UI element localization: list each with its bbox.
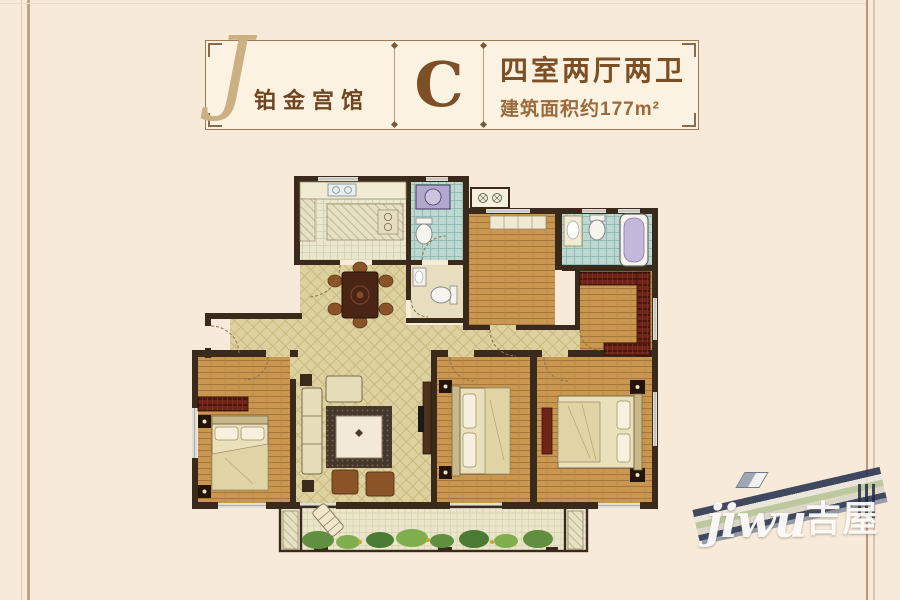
sofa	[302, 388, 322, 474]
watermark-cjk: 吉屋	[805, 498, 879, 539]
toilet	[416, 224, 432, 244]
page-background: J 铂金宫馆 C 四室两厅两卫 建筑面积约177m²	[0, 0, 900, 600]
watermark-logo-icon	[735, 472, 768, 488]
watermark-text: jiwu吉屋	[706, 490, 879, 548]
tv	[418, 406, 424, 432]
unit-letter-section: C	[395, 41, 483, 129]
toilet	[431, 287, 451, 303]
unit-area-text: 建筑面积约177m²	[500, 94, 698, 121]
project-name: 铂金宫馆	[254, 83, 370, 115]
toilet	[589, 220, 605, 240]
tv-cabinet	[423, 382, 431, 454]
unit-info-section: 四室两厅两卫 建筑面积约177m²	[484, 41, 698, 129]
frame-line-left-outer	[27, 0, 30, 600]
watermark-latin: jiwu	[706, 494, 805, 548]
ac-platform	[471, 188, 509, 208]
unit-letter: C	[414, 54, 463, 116]
watermark: jiwu吉屋	[692, 466, 892, 576]
armchair	[326, 376, 362, 402]
unit-header-box: J 铂金宫馆 C 四室两厅两卫 建筑面积约177m²	[205, 40, 699, 130]
unit-layout-text: 四室两厅两卫	[500, 49, 698, 89]
bench	[542, 408, 552, 454]
floorplan-image	[190, 168, 660, 558]
study-bedroom	[469, 214, 555, 325]
logo-initial: J	[216, 25, 253, 117]
project-logo-section: J 铂金宫馆	[206, 41, 394, 129]
wardrobe	[198, 397, 248, 411]
frame-line-top	[0, 3, 866, 4]
armchair	[366, 472, 394, 496]
frame-line-left-inner	[21, 0, 22, 600]
armchair	[332, 470, 358, 494]
